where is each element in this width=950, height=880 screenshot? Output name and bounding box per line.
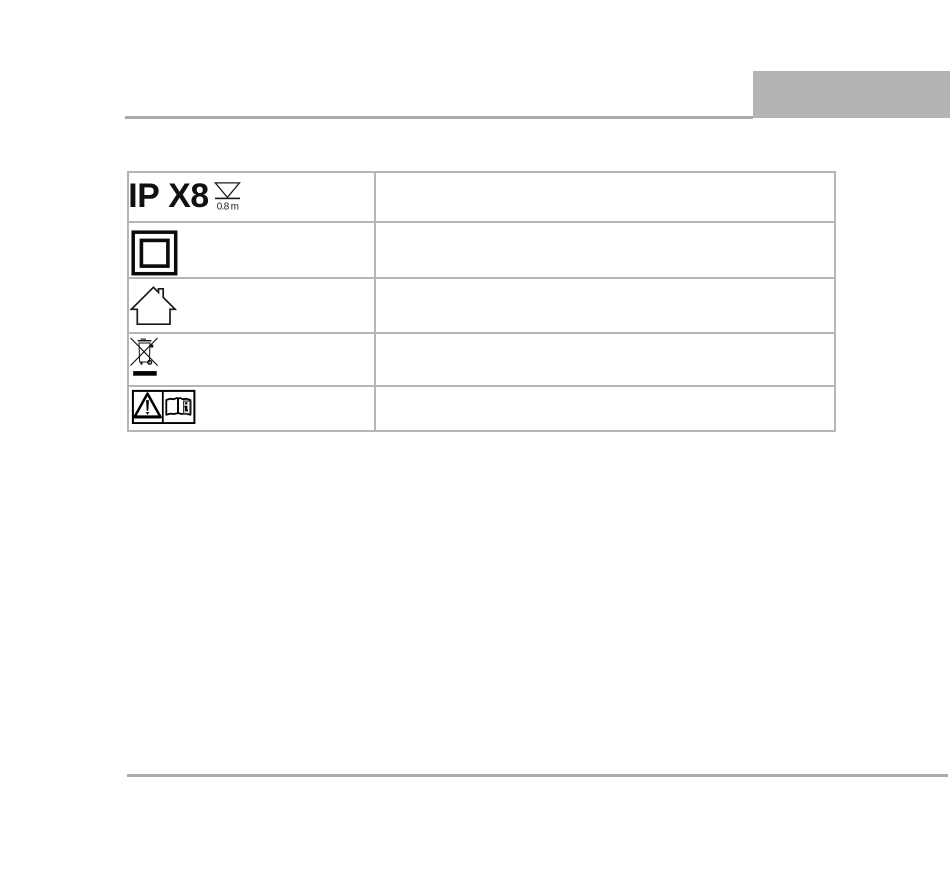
svg-text:0.8 m: 0.8 m xyxy=(217,201,239,212)
